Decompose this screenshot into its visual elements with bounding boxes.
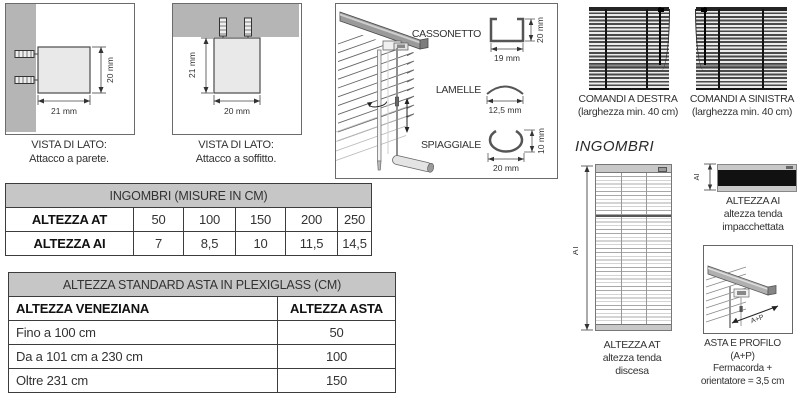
- cell: 10: [236, 232, 286, 256]
- side-view-ceiling-panel: 21 mm 20 mm: [172, 3, 302, 135]
- cell: 8,5: [184, 232, 236, 256]
- asta-profilo-drawing: A+P: [704, 246, 792, 333]
- width-dim-label: 20 mm: [224, 106, 250, 116]
- ai-bottom-rail: [718, 186, 796, 191]
- height-dimension: [201, 38, 213, 93]
- at-slats: [596, 173, 671, 325]
- side-view-ceiling-caption: VISTA DI LATO: Attacco a soffitto.: [172, 138, 300, 166]
- table-asta-plexiglass: ALTEZZA STANDARD ASTA IN PLEXIGLASS (CM)…: [8, 272, 396, 393]
- cell: 100: [184, 208, 236, 232]
- cassonetto-width-label: 19 mm: [494, 53, 520, 63]
- table-title: INGOMBRI (MISURE IN CM): [6, 184, 372, 208]
- cord-lock: [395, 97, 398, 106]
- width-dimension: [214, 95, 260, 105]
- cell: 250: [338, 208, 372, 232]
- cell: 11,5: [286, 232, 338, 256]
- height-dim-label: 21 mm: [187, 52, 197, 78]
- component-label-cassonetto: CASSONETTO: [412, 28, 481, 40]
- wall-surface: [6, 4, 36, 132]
- cell-label: Fino a 100 cm: [9, 321, 278, 345]
- cassonetto-height-label: 20 mm: [535, 17, 545, 43]
- caption-subtitle: (larghezza min. 40 cm): [686, 106, 798, 119]
- at-bottom-rail: [596, 324, 671, 330]
- blind-headrail: [696, 7, 787, 11]
- at-blind-diagram: [595, 164, 672, 331]
- controls-right-caption: COMANDI A DESTRA (larghezza min. 40 cm): [572, 93, 684, 119]
- ai-packed-blind-diagram: [717, 164, 797, 192]
- blind-photo-controls-right: [589, 7, 669, 90]
- cell-value: 150: [278, 369, 396, 393]
- at-dim-label: AT: [573, 245, 580, 255]
- ai-caption: ALTEZZA AI altezza tenda impacchettata: [699, 195, 800, 234]
- at-caption: ALTEZZA AT altezza tenda discesa: [582, 339, 682, 378]
- spiaggiale-profile: [490, 131, 522, 151]
- spiaggiale-height-label: 10 mm: [536, 128, 546, 154]
- cell: 7: [134, 232, 184, 256]
- caption-subtitle: Attacco a parete.: [5, 152, 133, 166]
- ai-packed-slats: [718, 170, 796, 186]
- asta-profilo-caption: ASTA E PROFILO (A+P) Fermacorda + orient…: [685, 338, 800, 388]
- caption-title: COMANDI A SINISTRA: [686, 93, 798, 106]
- ai-dimension-arrow: AI: [694, 161, 716, 193]
- width-dimension: [38, 95, 90, 105]
- ap-dimension-arrow: A+P: [732, 306, 778, 325]
- height-dimension: [92, 47, 106, 93]
- datasheet-page: 20 mm 21 mm VISTA DI LATO: Attacco a par…: [0, 0, 800, 400]
- caption-title: VISTA DI LATO:: [5, 138, 133, 152]
- spiaggiale-height-dim: [524, 130, 535, 152]
- controls-left-caption: COMANDI A SINISTRA (larghezza min. 40 cm…: [686, 93, 798, 119]
- cell: 150: [236, 208, 286, 232]
- ceiling-surface: [173, 4, 299, 37]
- lift-cord: [661, 9, 670, 71]
- side-view-wall-caption: VISTA DI LATO: Attacco a parete.: [5, 138, 133, 166]
- headrail-bracket: [214, 38, 260, 93]
- asta-profilo-diagram: A+P: [703, 245, 793, 334]
- blind-components-panel: 19 mm 20 mm 12,5 mm: [335, 3, 558, 179]
- bottom-rail: [392, 155, 435, 173]
- caption-title: COMANDI A DESTRA: [572, 93, 684, 106]
- table-row: Fino a 100 cm 50: [9, 321, 396, 345]
- ai-dim-label: AI: [694, 173, 701, 180]
- tilt-wand: [704, 7, 706, 65]
- lowered-slats-lines: [336, 107, 406, 161]
- cell: 200: [286, 208, 338, 232]
- tilt-wand: [378, 50, 382, 170]
- headrail-bracket: [38, 47, 90, 93]
- caption-title: VISTA DI LATO:: [172, 138, 300, 152]
- row-label: ALTEZZA AT: [6, 208, 134, 232]
- wall-mount-drawing: 20 mm 21 mm: [6, 4, 132, 132]
- row-label: ALTEZZA AI: [6, 232, 134, 256]
- blind-headrail: [589, 7, 669, 11]
- cell: 50: [134, 208, 184, 232]
- caption-subtitle: (larghezza min. 40 cm): [572, 106, 684, 119]
- ladder-tape: [762, 9, 764, 88]
- cell: 14,5: [338, 232, 372, 256]
- table-ingombri: INGOMBRI (MISURE IN CM) ALTEZZA AT 50 10…: [5, 183, 372, 256]
- cell-label: Da a 101 cm a 230 cm: [9, 345, 278, 369]
- wand-hook: [701, 8, 707, 12]
- ceiling-mount-drawing: 21 mm 20 mm: [173, 4, 299, 132]
- lamelle-profile: [487, 87, 523, 95]
- table-title: ALTEZZA STANDARD ASTA IN PLEXIGLASS (CM): [9, 273, 396, 297]
- caption-subtitle: Attacco a soffitto.: [172, 152, 300, 166]
- cell-value: 50: [278, 321, 396, 345]
- width-dim-label: 21 mm: [51, 106, 77, 116]
- bottom-rail: [696, 88, 787, 90]
- ingombri-heading: INGOMBRI: [575, 138, 654, 155]
- at-dimension-arrow: AT: [573, 162, 593, 334]
- table-title-row: INGOMBRI (MISURE IN CM): [6, 184, 372, 208]
- table-row: ALTEZZA AT 50 100 150 200 250: [6, 208, 372, 232]
- spiaggiale-width-label: 20 mm: [493, 163, 519, 173]
- component-label-lamelle: LAMELLE: [436, 84, 481, 96]
- ladder-tape: [605, 9, 607, 88]
- col-header-asta: ALTEZZA ASTA: [278, 297, 396, 321]
- table-row: Oltre 231 cm 150: [9, 369, 396, 393]
- lamelle-width-label: 12,5 mm: [488, 105, 521, 115]
- height-dim-label: 20 mm: [105, 57, 115, 83]
- col-header-veneziana: ALTEZZA VENEZIANA: [9, 297, 278, 321]
- bottom-rail: [589, 88, 669, 90]
- component-label-spiaggiale: SPIAGGIALE: [421, 139, 481, 151]
- table-title-row: ALTEZZA STANDARD ASTA IN PLEXIGLASS (CM): [9, 273, 396, 297]
- lift-cord: [695, 9, 704, 71]
- table-row: ALTEZZA AI 7 8,5 10 11,5 14,5: [6, 232, 372, 256]
- cell-label: Oltre 231 cm: [9, 369, 278, 393]
- rotate-arrow-icon: [367, 102, 387, 107]
- ladder-tape: [646, 9, 648, 88]
- table-row: Da a 101 cm a 230 cm 100: [9, 345, 396, 369]
- side-view-wall-panel: 20 mm 21 mm: [5, 3, 135, 135]
- cell-value: 100: [278, 345, 396, 369]
- ai-headrail: [718, 165, 796, 170]
- cassonetto-profile: [491, 19, 523, 41]
- blind-photo-controls-left: [696, 7, 787, 90]
- at-headrail: [596, 165, 671, 173]
- table-header-row: ALTEZZA VENEZIANA ALTEZZA ASTA: [9, 297, 396, 321]
- wand-hook: [658, 8, 664, 12]
- ladder-tape: [718, 9, 720, 88]
